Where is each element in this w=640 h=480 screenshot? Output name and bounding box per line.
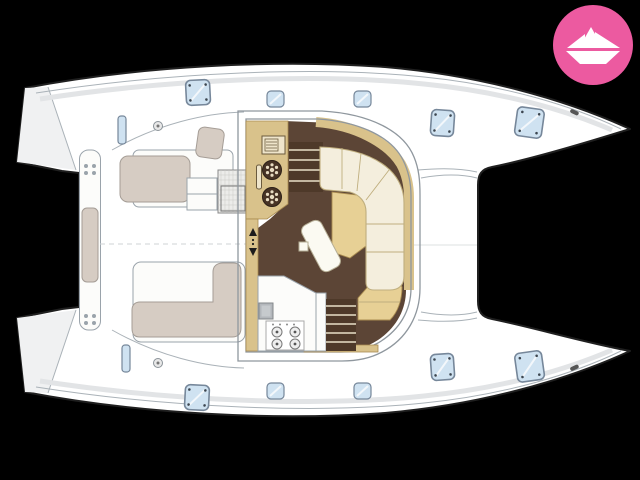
galley-handle (257, 165, 262, 189)
deck-hatch (514, 350, 545, 382)
round-sink-1 (263, 161, 282, 180)
cockpit-grated-table (218, 170, 248, 213)
deck-hatch (354, 91, 371, 107)
entry-step-1 (187, 178, 217, 194)
side-window-top (118, 116, 126, 144)
microwave (262, 136, 285, 154)
screenshot-canvas (0, 0, 640, 480)
deck-hatch (267, 91, 284, 107)
brand-logo (553, 5, 633, 85)
entry-step-2 (187, 194, 217, 210)
galley-side-strip (246, 219, 258, 351)
deck-filler-bottom-dot (157, 362, 160, 365)
stairs-starboard (312, 293, 356, 351)
port-bench-cushion (120, 156, 190, 202)
deck-hatch (430, 353, 455, 381)
square-sink (259, 303, 273, 319)
deck-hatch (267, 383, 284, 399)
side-window-bottom (122, 345, 130, 372)
port-back-cushion (195, 126, 225, 159)
deck-hatch (514, 106, 545, 138)
deck-hatch (354, 383, 371, 399)
floorplan-image (0, 0, 640, 480)
stove (266, 321, 304, 350)
dining-table (332, 192, 366, 258)
round-sink-2 (263, 188, 282, 207)
aft-bench-cushion (82, 208, 98, 282)
deck-hatch (430, 109, 455, 137)
salon (238, 111, 420, 361)
deck-hatch (184, 384, 209, 410)
catamaran (17, 64, 630, 416)
floor-box (299, 242, 308, 251)
aft-bench (80, 150, 101, 330)
deck-filler-top-dot (157, 125, 160, 128)
deck-hatch (185, 79, 210, 105)
stairs-port (289, 142, 323, 192)
